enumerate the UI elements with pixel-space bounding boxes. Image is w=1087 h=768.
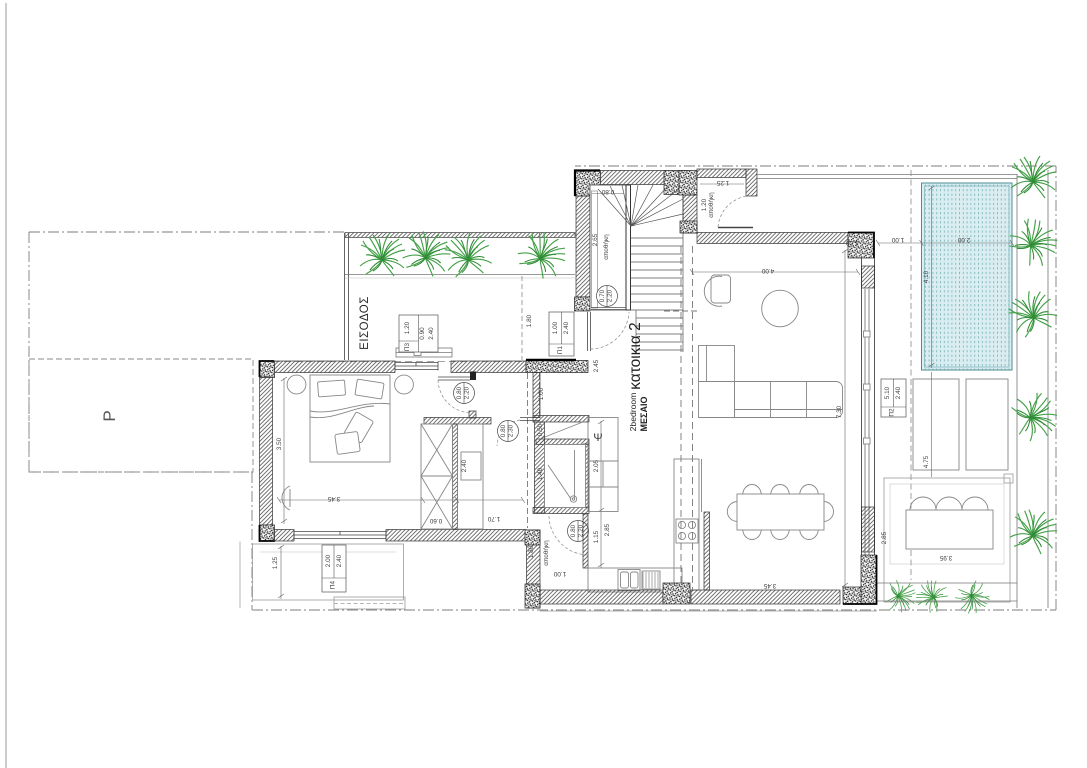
svg-text:0.80: 0.80 [456,386,463,399]
svg-text:2.45: 2.45 [593,359,600,372]
svg-text:αποθήκη: αποθήκη [708,192,715,218]
svg-text:1.15: 1.15 [593,530,600,543]
svg-text:0.70: 0.70 [599,289,606,302]
svg-text:2bedroom: 2bedroom [628,393,638,432]
svg-text:1.40: 1.40 [537,467,544,480]
svg-text:4.75: 4.75 [923,455,930,468]
svg-text:αποθήκη: αποθήκη [603,234,610,260]
svg-text:2.00: 2.00 [957,236,970,243]
svg-text:Π1: Π1 [557,345,564,354]
svg-text:1.20: 1.20 [701,198,708,211]
svg-text:2.65: 2.65 [592,233,599,246]
svg-text:ΕΙΣΟΔΟΣ: ΕΙΣΟΔΟΣ [359,296,371,350]
svg-text:αποθήκη: αποθήκη [543,540,550,566]
svg-text:κατοικια 2: κατοικια 2 [627,322,644,390]
svg-text:2.40: 2.40 [428,327,435,340]
svg-text:5.10: 5.10 [884,386,891,399]
svg-text:Ψ: Ψ [593,432,602,444]
svg-text:ΜΕΣΑΙΟ: ΜΕΣΑΙΟ [639,397,649,432]
svg-text:2.20: 2.20 [464,386,471,399]
svg-text:2.40: 2.40 [563,321,570,334]
svg-text:2.85: 2.85 [881,531,888,544]
svg-text:1.20: 1.20 [404,321,411,334]
svg-text:2.40: 2.40 [336,554,343,567]
svg-text:3.95: 3.95 [939,554,952,561]
svg-text:0.80: 0.80 [601,188,614,195]
svg-text:2.30: 2.30 [508,424,515,437]
svg-text:1.00: 1.00 [553,570,566,577]
svg-text:1.70: 1.70 [487,515,500,522]
svg-text:3.45: 3.45 [763,582,776,589]
svg-text:4.10: 4.10 [923,270,930,283]
svg-text:4.00: 4.00 [761,267,774,274]
svg-text:Π3: Π3 [404,342,411,351]
svg-text:1.80: 1.80 [528,545,535,558]
svg-text:Π2: Π2 [889,408,896,417]
svg-text:1.80: 1.80 [526,314,533,327]
svg-text:2.40: 2.40 [461,459,468,472]
svg-text:0.80: 0.80 [570,524,577,537]
svg-text:0.90: 0.90 [419,327,426,340]
svg-text:3.45: 3.45 [327,495,340,502]
svg-text:7.30: 7.30 [836,405,843,418]
svg-text:2.00: 2.00 [325,554,332,567]
svg-text:0.50: 0.50 [537,423,544,436]
svg-text:0.80: 0.80 [500,424,507,437]
svg-text:2.85: 2.85 [604,523,611,536]
svg-text:2.20: 2.20 [607,289,614,302]
svg-text:1.25: 1.25 [716,179,729,186]
svg-text:0.60: 0.60 [429,517,442,524]
svg-text:3.50: 3.50 [276,437,283,450]
svg-text:1.00: 1.00 [845,239,858,246]
svg-text:P: P [100,410,119,421]
svg-text:1.00: 1.00 [891,236,904,243]
svg-text:2.40: 2.40 [895,386,902,399]
svg-text:Π4: Π4 [330,580,337,589]
svg-text:1.25: 1.25 [272,556,279,569]
svg-text:1.00: 1.00 [552,321,559,334]
